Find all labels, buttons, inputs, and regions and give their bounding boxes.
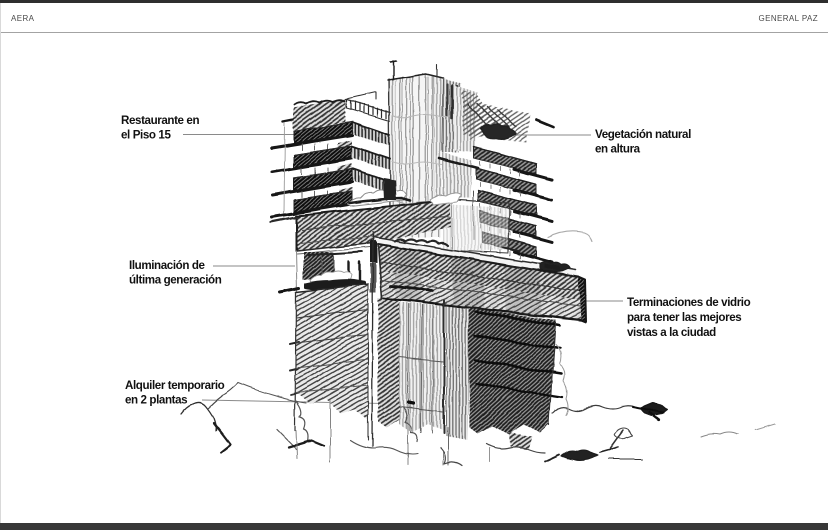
svg-text:Iluminación de: Iluminación de — [129, 259, 206, 272]
svg-text:AERA: AERA — [11, 14, 35, 23]
svg-text:en altura: en altura — [595, 143, 641, 156]
svg-text:Alquiler temporario: Alquiler temporario — [125, 379, 225, 392]
svg-text:en 2 plantas: en 2 plantas — [125, 394, 187, 407]
svg-text:última generación: última generación — [129, 274, 222, 287]
svg-text:Vegetación natural: Vegetación natural — [595, 128, 691, 141]
svg-text:vistas a la ciudad: vistas a la ciudad — [627, 326, 716, 339]
svg-text:GENERAL PAZ: GENERAL PAZ — [758, 14, 818, 23]
svg-text:el Piso 15: el Piso 15 — [121, 129, 171, 142]
svg-text:Restaurante en: Restaurante en — [121, 114, 199, 127]
svg-text:Terminaciones de vidrio: Terminaciones de vidrio — [627, 296, 751, 309]
svg-text:para tener las mejores: para tener las mejores — [627, 311, 741, 324]
